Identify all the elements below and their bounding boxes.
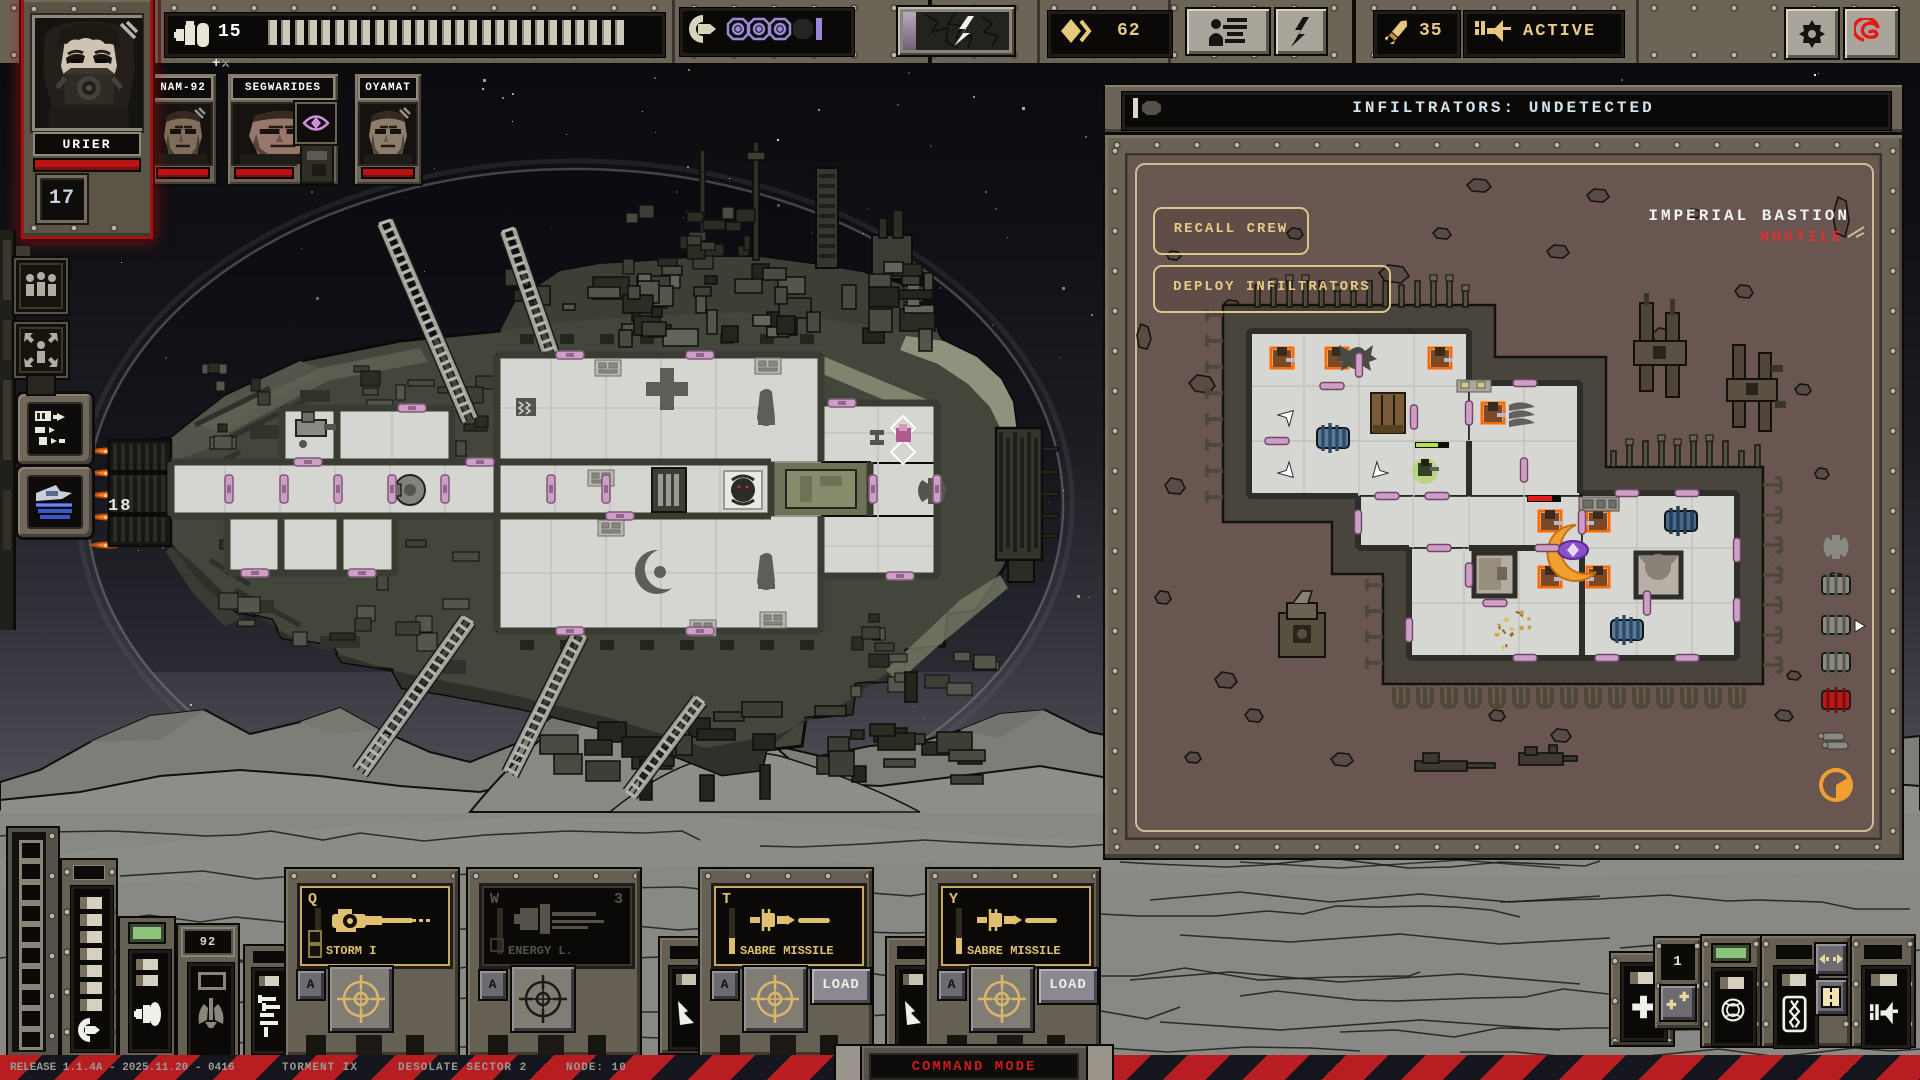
svg-text:18: 18	[108, 497, 132, 516]
